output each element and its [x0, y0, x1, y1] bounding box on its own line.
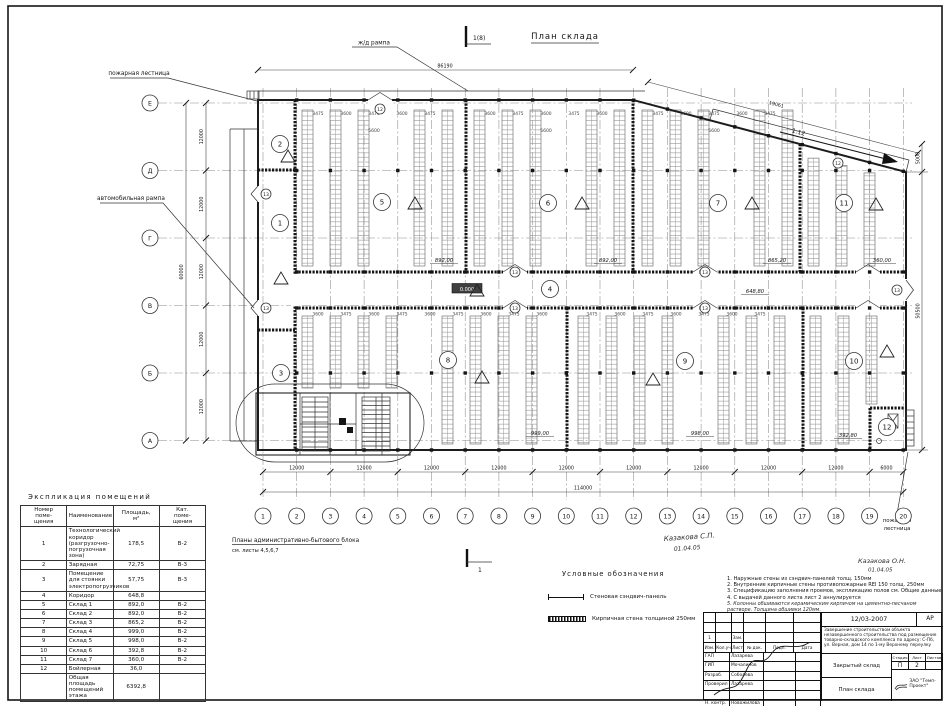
room-number: 9 [683, 358, 687, 366]
explication-row: 12Бойлерная36,0 [21, 664, 206, 673]
room-explication: Экспликация помещений Номер поме- щения … [20, 493, 210, 702]
role-cell: Н. контр. [704, 700, 730, 706]
column-mark [295, 98, 298, 101]
rack-dim: 3475 [452, 312, 463, 318]
column-mark [598, 306, 601, 309]
explication-cell: В-2 [159, 646, 205, 655]
column-mark [497, 270, 500, 273]
signature-plan-date: 01.04.05 [674, 544, 701, 553]
column-mark [464, 371, 467, 374]
explication-header-row: Номер поме- щения Наименование Площадь, … [21, 506, 206, 527]
legend-title: Условные обозначения [562, 570, 718, 578]
rack-dim: 3600 [540, 111, 551, 117]
explication-cell: В-2 [159, 655, 205, 664]
column-mark [767, 448, 770, 451]
room-area-label: 892,00 [599, 258, 618, 264]
explication-cell: 892,0 [113, 609, 159, 618]
column-mark [598, 270, 601, 273]
grid-column-label: 3 [328, 513, 332, 520]
grid-column-label: 10 [562, 513, 570, 520]
change-table-cell [704, 623, 716, 633]
explication-cell: 7 [21, 619, 67, 628]
grid-row-label: Б [148, 370, 152, 377]
explication-cell: В-2 [159, 628, 205, 637]
column-mark [329, 98, 332, 101]
dim-label: 12000 [491, 466, 506, 472]
change-table-cell [732, 613, 744, 623]
explication-cell: 4 [21, 591, 67, 600]
rack-dim: 3475 [754, 312, 765, 318]
room-area-label: 998,00 [691, 431, 710, 437]
grid-column-label: 1 [261, 513, 265, 520]
explication-cell [159, 673, 205, 701]
opening-mark-label: 13 [512, 270, 518, 276]
column-mark [868, 169, 871, 172]
explication-cell: 36,0 [113, 664, 159, 673]
explication-body: 1Технологический коридор (разгруз­очно-п… [21, 527, 206, 701]
column-mark [733, 371, 736, 374]
aisle-dim: 5600 [708, 128, 720, 134]
role-cell [796, 691, 821, 701]
column-mark [699, 448, 702, 451]
room-number: 8 [446, 357, 450, 365]
column-mark [565, 306, 568, 309]
column-mark [834, 270, 837, 273]
rail-ramp-label: ж/д рампа [358, 41, 390, 47]
sheets-label: Листов [926, 654, 943, 662]
explication-row: 8Склад 4999,0В-2 [21, 628, 206, 637]
explication-cell: 5 [21, 600, 67, 609]
explication-cell: 892,0 [113, 600, 159, 609]
explication-row: 3Помещение для стоянки электропогрузчико… [21, 570, 206, 591]
column-mark [396, 306, 399, 309]
column-mark [531, 448, 534, 451]
rack-dim: 3600 [596, 111, 607, 117]
room-number: 4 [548, 286, 553, 294]
rack-dim: 3475 [340, 312, 351, 318]
column-mark [362, 270, 365, 273]
signature-notes-name: Казакова О.Н. [858, 557, 906, 565]
column-mark [329, 306, 332, 309]
object-name: Закрытый склад [822, 654, 891, 678]
column-mark [666, 169, 669, 172]
grid-column-label: 18 [832, 513, 840, 520]
role-cell: Проверил [704, 681, 730, 691]
explication-cell: 6 [21, 609, 67, 618]
column-mark [430, 306, 433, 309]
column-mark [362, 98, 365, 101]
explication-cell: Помещение для стоянки электропогрузчиков [67, 570, 113, 591]
change-table-cell [794, 633, 821, 643]
column-mark [666, 448, 669, 451]
grid-column-label: 5 [396, 513, 400, 520]
explication-cell [159, 591, 205, 600]
role-cell [764, 653, 796, 663]
column-mark [733, 448, 736, 451]
explication-cell: Склад 3 [67, 619, 113, 628]
column-mark [902, 448, 905, 451]
column-mark [666, 306, 669, 309]
opening-mark-label: 13 [263, 192, 269, 198]
room-number: 5 [380, 199, 384, 207]
fire-escape-bottom-label-2: лестница [884, 526, 911, 532]
column-mark [632, 270, 635, 273]
column-mark [531, 371, 534, 374]
column-mark [295, 306, 298, 309]
change-table-cell [744, 613, 766, 623]
rack-dim: 3475 [642, 312, 653, 318]
column-mark [295, 448, 298, 451]
explication-row: Общая площадь помещений этажа6392,8 [21, 673, 206, 701]
column-mark [767, 270, 770, 273]
explication-cell: Склад 6 [67, 646, 113, 655]
column-mark [868, 371, 871, 374]
explication-cell: Склад 5 [67, 637, 113, 646]
role-cell: ГАП [704, 653, 730, 663]
column-mark [801, 169, 804, 172]
company-logo-cell: ЗАО "Темп-Проект" [892, 670, 943, 700]
explication-cell: Коридор [67, 591, 113, 600]
dim-label: 86190 [437, 64, 452, 70]
change-table-cell: Подп. [766, 643, 794, 653]
rack-dim: 3600 [736, 111, 747, 117]
stage-value-row: П 2 [892, 662, 943, 670]
explication-cell: В-2 [159, 600, 205, 609]
role-cell [796, 653, 821, 663]
rack-dim: 3600 [726, 312, 737, 318]
column-mark [801, 143, 804, 146]
explication-row: 2Зарядная72,75В-3 [21, 561, 206, 570]
column-mark [329, 371, 332, 374]
column-mark [295, 371, 298, 374]
column-mark [464, 306, 467, 309]
dim-tick [645, 79, 651, 85]
change-table-cell [744, 633, 766, 643]
explication-cell: 998,0 [113, 637, 159, 646]
explication-table: Номер поме- щения Наименование Площадь, … [20, 505, 206, 702]
change-table-cell: 1 [704, 633, 716, 643]
change-table-cell: Зам. [732, 633, 744, 643]
explication-cell: В-2 [159, 619, 205, 628]
storage-racks [302, 110, 877, 444]
explication-header-cell: Наименование [67, 506, 113, 527]
explication-cell: Технологический коридор (разгруз­очно-по… [67, 527, 113, 561]
project-description: Завершение строительством объекта незаве… [822, 627, 943, 654]
opening-mark-label: 12 [377, 107, 383, 113]
notes-list: 1. Наружные стены из сэндвич-панелей тол… [727, 576, 943, 601]
section-mark-top-label: 1(8) [473, 35, 485, 42]
explication-row: 9Склад 5998,0В-2 [21, 637, 206, 646]
roles-table: ГАПЛазареваГИПМочалиновРазраб.СоболеваПр… [704, 653, 821, 706]
opening-mark-label: 12 [835, 161, 841, 167]
grid-column-label: 14 [697, 513, 705, 520]
column-mark [632, 448, 635, 451]
hazard-triangle-icon [274, 272, 288, 284]
explication-cell: В-2 [159, 527, 205, 561]
column-mark [632, 306, 635, 309]
room-number: 2 [278, 141, 282, 149]
room-area-label: 360,00 [873, 258, 892, 264]
column-mark [834, 371, 837, 374]
rack-dim: 3600 [614, 312, 625, 318]
role-cell: ГИП [704, 662, 730, 672]
grid-column-label: 4 [362, 513, 366, 520]
slope-ramp-arrow-head [882, 153, 898, 164]
rack-dim: 3475 [652, 111, 663, 117]
change-table-cell: Изм. [704, 643, 716, 653]
equipment-block [347, 427, 353, 433]
explication-cell [159, 664, 205, 673]
note-item: 3. Спецификацию заполнения проемов, эксп… [727, 588, 943, 594]
explication-cell: 12 [21, 664, 67, 673]
company-logo-icon [893, 679, 907, 691]
dim-label: 50500 [916, 303, 922, 318]
drawing-sheet: 1200012000120001200012000120001200012000… [0, 0, 950, 706]
column-mark [396, 169, 399, 172]
admin-note-line2: см. листы 4,5,6,7 [232, 548, 279, 554]
dim-label: 12000 [199, 399, 205, 414]
explication-cell: 72,75 [113, 561, 159, 570]
column-mark [699, 169, 702, 172]
grid-row-label: Д [148, 168, 153, 175]
explication-cell [21, 673, 67, 701]
column-mark [329, 270, 332, 273]
explication-row: 4Коридор648,8 [21, 591, 206, 600]
column-mark [430, 270, 433, 273]
dim-label: 5000 [916, 152, 922, 164]
explication-cell: 3 [21, 570, 67, 591]
stage-column: Стадия Лист Листов П 2 ЗАО "Темп-Проект" [892, 654, 943, 701]
rack-dim: 3600 [312, 312, 323, 318]
explication-row: 11Склад 7360,0В-2 [21, 655, 206, 664]
explication-cell: Склад 1 [67, 600, 113, 609]
column-mark [396, 371, 399, 374]
column-mark [531, 270, 534, 273]
dim-label: 19061 [768, 100, 784, 110]
column-mark [396, 448, 399, 451]
elevator-shaft [339, 418, 346, 425]
room-number: 6 [546, 200, 551, 208]
explication-cell: 1 [21, 527, 67, 561]
column-mark [295, 270, 298, 273]
column-mark [767, 306, 770, 309]
grid-column-label: 13 [663, 513, 671, 520]
explication-header-cell: Кат. поме- щения [159, 506, 205, 527]
explication-cell: Склад 4 [67, 628, 113, 637]
column-mark [868, 448, 871, 451]
rack-dim: 3475 [312, 111, 323, 117]
column-mark [464, 169, 467, 172]
column-mark [396, 98, 399, 101]
role-cell: Лазарева [730, 681, 764, 691]
explication-cell: В-2 [159, 609, 205, 618]
column-mark [497, 98, 500, 101]
stage-header-row: Стадия Лист Листов [892, 654, 943, 662]
doc-number: 12/03-2007 [822, 613, 916, 626]
role-cell [764, 662, 796, 672]
stage-value: П [892, 662, 909, 670]
dim-label: 12000 [761, 466, 776, 472]
dim-label: 6000 [880, 466, 892, 472]
dim-label: 12000 [199, 197, 205, 212]
aisle-dim: 5600 [540, 128, 552, 134]
explication-cell: В-3 [159, 561, 205, 570]
column-mark [902, 371, 905, 374]
rack-dim: 3475 [708, 111, 719, 117]
column-mark [531, 169, 534, 172]
room-area-label: 648,80 [746, 289, 765, 295]
column-mark [632, 371, 635, 374]
change-table-cell: Дата [794, 643, 821, 653]
explication-header-cell: Площадь, м² [113, 506, 159, 527]
role-cell [764, 700, 796, 706]
sheet-label: Лист [909, 654, 926, 662]
change-table-cell [794, 623, 821, 633]
change-table-cell [794, 613, 821, 623]
column-mark [801, 306, 804, 309]
opening-mark-label: 13 [512, 306, 518, 312]
title-block-left: 1Зам.Изм.Кол.учЛист№ док.Подп.Дата ГАПЛа… [704, 613, 822, 701]
change-table-cell [766, 633, 794, 643]
column-mark [430, 98, 433, 101]
opening-mark-label: 13 [702, 270, 708, 276]
rack-dim: 3600 [480, 312, 491, 318]
grid-column-label: 11 [596, 513, 604, 520]
boiler-tank [877, 439, 882, 444]
explication-cell: 6392,8 [113, 673, 159, 701]
rack-dim: 3600 [680, 111, 691, 117]
explication-row: 10Склад 6392,8В-2 [21, 646, 206, 655]
stage-label: Стадия [892, 654, 909, 662]
explication-cell: 8 [21, 628, 67, 637]
slope-ramp-arrow-line [780, 132, 886, 159]
role-cell: Новожилова [730, 700, 764, 706]
explication-cell: 392,8 [113, 646, 159, 655]
auto-ramp-label: автомобильная рампа [97, 196, 165, 202]
legend-item: Кирпичная стена толщиной 250мм [548, 616, 718, 622]
column-mark [902, 270, 905, 273]
grid-column-label: 8 [497, 513, 501, 520]
dim-label: 12000 [828, 466, 843, 472]
signature-plan-name: Казакова С.П. [664, 531, 715, 543]
title-block-right: 12/03-2007 АР Завершение строительством … [822, 613, 943, 701]
logo-swoosh [895, 682, 907, 690]
legend-item: Стеновая сэндвич-панель [548, 594, 718, 600]
legend: Условные обозначения Стеновая сэндвич-па… [548, 570, 718, 622]
role-cell: Лазарева [730, 653, 764, 663]
brick-wall-line-icon [548, 616, 586, 622]
opening-mark-label: 13 [702, 306, 708, 312]
dim-label: 12000 [199, 332, 205, 347]
grid-column-label: 12 [630, 513, 638, 520]
explication-row: 6Склад 2892,0В-2 [21, 609, 206, 618]
grid-column-label: 6 [430, 513, 434, 520]
column-mark [801, 371, 804, 374]
column-mark [733, 306, 736, 309]
change-table-cell: № док. [744, 643, 766, 653]
column-mark [464, 270, 467, 273]
role-cell: Мочалинов [730, 662, 764, 672]
fire-ladder-top [247, 91, 259, 99]
role-cell [796, 681, 821, 691]
column-mark [834, 152, 837, 155]
rack-dim: 3600 [340, 111, 351, 117]
note-item: 4. С выдачей данного листа лист 2 аннули… [727, 595, 943, 601]
change-table-cell [716, 633, 732, 643]
dim-label: 60000 [179, 264, 185, 279]
column-mark [733, 125, 736, 128]
opening-mark-label: 13 [894, 288, 900, 294]
doc-number-row: 12/03-2007 АР [822, 613, 943, 627]
grid-column-label: 15 [731, 513, 739, 520]
sheet-number: 2 [909, 662, 926, 670]
explication-cell: Общая площадь помещений этажа [67, 673, 113, 701]
dim-label: 12000 [356, 466, 371, 472]
column-mark [767, 371, 770, 374]
explication-cell: 11 [21, 655, 67, 664]
column-mark [902, 306, 905, 309]
explication-row: 1Технологический коридор (разгруз­очно-п… [21, 527, 206, 561]
change-table: 1Зам.Изм.Кол.учЛист№ док.Подп.Дата [704, 613, 821, 653]
column-mark [362, 371, 365, 374]
dim-label: 12000 [199, 129, 205, 144]
role-cell [730, 691, 764, 701]
role-cell [764, 681, 796, 691]
column-mark [699, 116, 702, 119]
title-block-bottom: Закрытый склад План склада Стадия Лист Л… [822, 654, 943, 701]
sandwich-panel-line-icon [548, 597, 584, 598]
column-mark [329, 169, 332, 172]
column-mark [834, 448, 837, 451]
column-mark [598, 371, 601, 374]
column-mark [632, 98, 635, 101]
column-mark [396, 270, 399, 273]
role-cell [796, 672, 821, 682]
explication-row: 7Склад 3865,2В-2 [21, 619, 206, 628]
column-mark [497, 306, 500, 309]
explication-cell: В-3 [159, 570, 205, 591]
explication-cell: Склад 2 [67, 609, 113, 618]
column-mark [801, 270, 804, 273]
column-mark [733, 169, 736, 172]
change-table-cell [744, 623, 766, 633]
room-number: 12 [883, 424, 892, 432]
column-mark [430, 169, 433, 172]
change-table-cell [716, 623, 732, 633]
column-mark [362, 306, 365, 309]
explication-cell: Склад 7 [67, 655, 113, 664]
role-cell [764, 691, 796, 701]
legend-item-label: Стеновая сэндвич-панель [590, 594, 667, 600]
grid-column-label: 9 [531, 513, 535, 520]
dim-label: 12000 [626, 466, 641, 472]
rack-dim: 3475 [424, 111, 435, 117]
rack-dim: 3475 [396, 312, 407, 318]
dim-label: 12000 [199, 264, 205, 279]
rack-dim: 3475 [586, 312, 597, 318]
room-area-label: 892,00 [435, 258, 454, 264]
column-mark [430, 371, 433, 374]
column-mark [497, 448, 500, 451]
explication-cell: 360,0 [113, 655, 159, 664]
explication-header-cell: Номер поме- щения [21, 506, 67, 527]
hazard-triangle-icon [880, 345, 894, 357]
explication-cell: Зарядная [67, 561, 113, 570]
role-cell: Соболева [730, 672, 764, 682]
fire-escape-top-label: пожарная лестница [108, 71, 170, 77]
change-table-cell [766, 613, 794, 623]
grid-column-label: 17 [798, 513, 806, 520]
